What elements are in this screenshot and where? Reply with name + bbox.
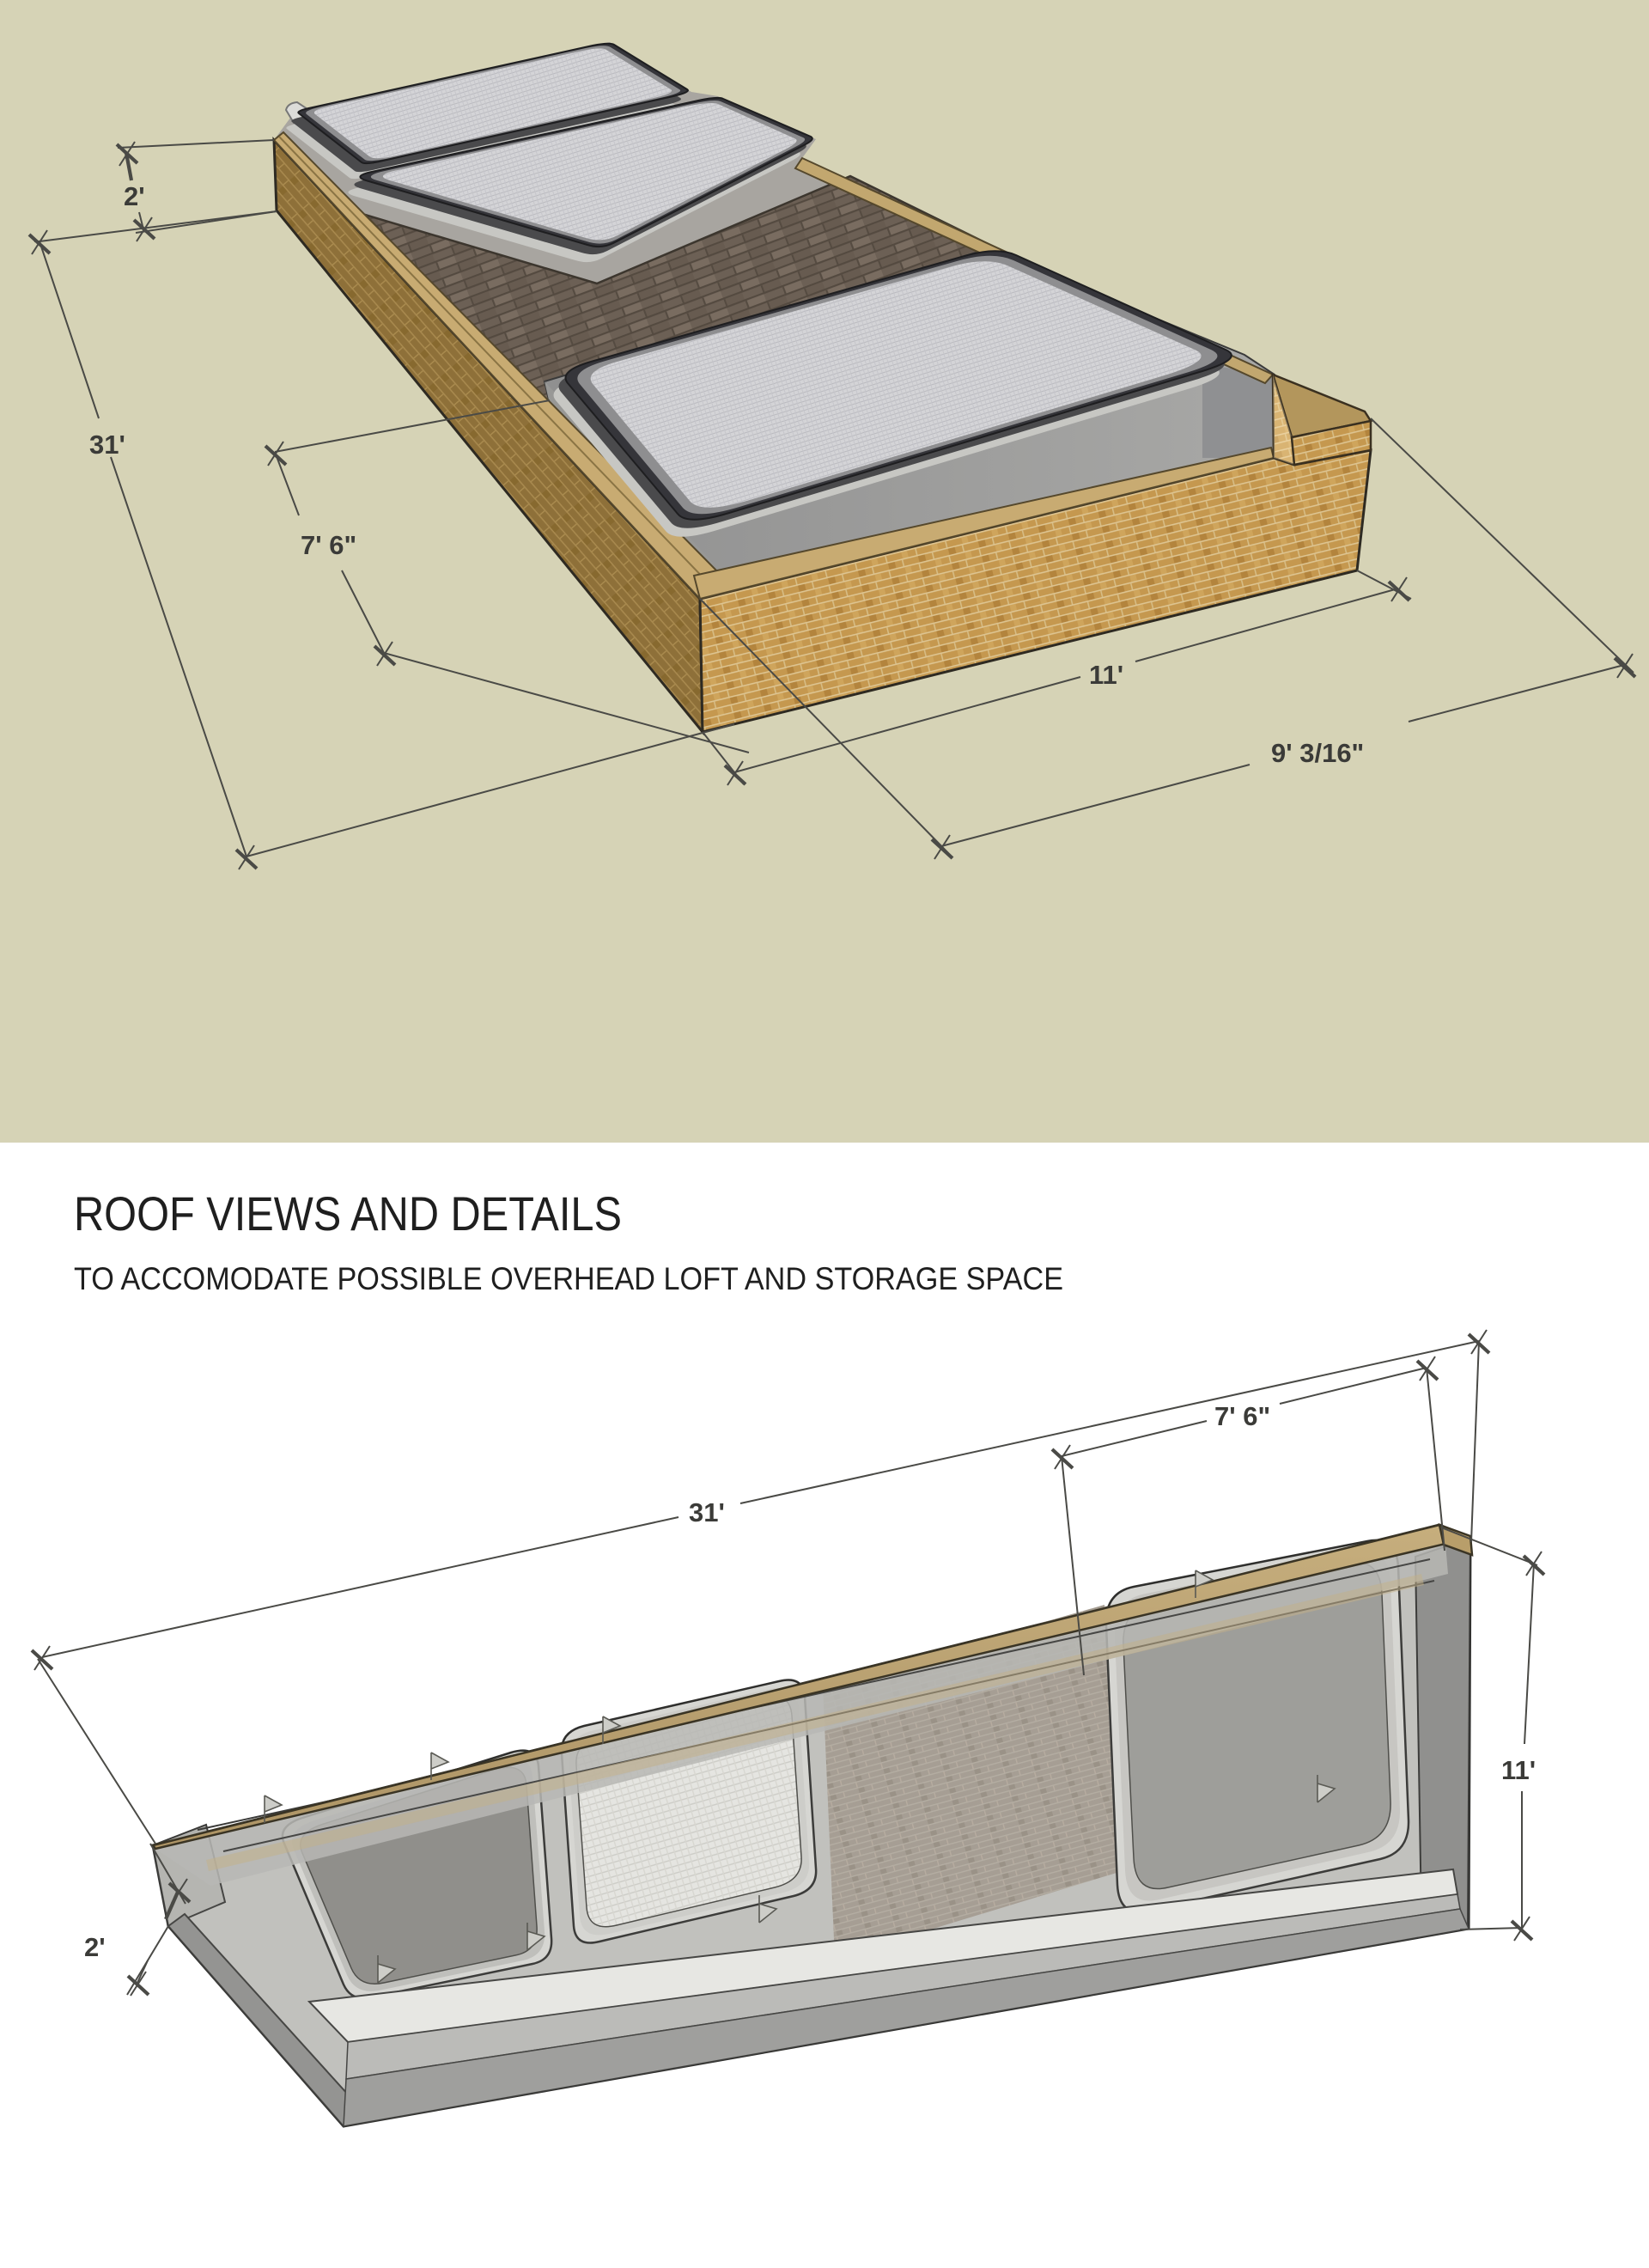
svg-text:2': 2' [84, 1932, 106, 1962]
svg-text:7' 6": 7' 6" [1214, 1401, 1270, 1431]
svg-text:11': 11' [1501, 1755, 1536, 1785]
svg-text:TO ACCOMODATE POSSIBLE OVERHEA: TO ACCOMODATE POSSIBLE OVERHEAD LOFT AND… [74, 1261, 1063, 1296]
svg-text:7' 6": 7' 6" [301, 530, 356, 560]
svg-text:11': 11' [1089, 660, 1123, 690]
svg-text:ROOF VIEWS AND DETAILS: ROOF VIEWS AND DETAILS [74, 1186, 622, 1241]
svg-text:31': 31' [689, 1497, 725, 1527]
svg-text:2': 2' [124, 181, 145, 211]
svg-text:9' 3/16": 9' 3/16" [1271, 738, 1364, 768]
svg-text:31': 31' [89, 430, 125, 460]
